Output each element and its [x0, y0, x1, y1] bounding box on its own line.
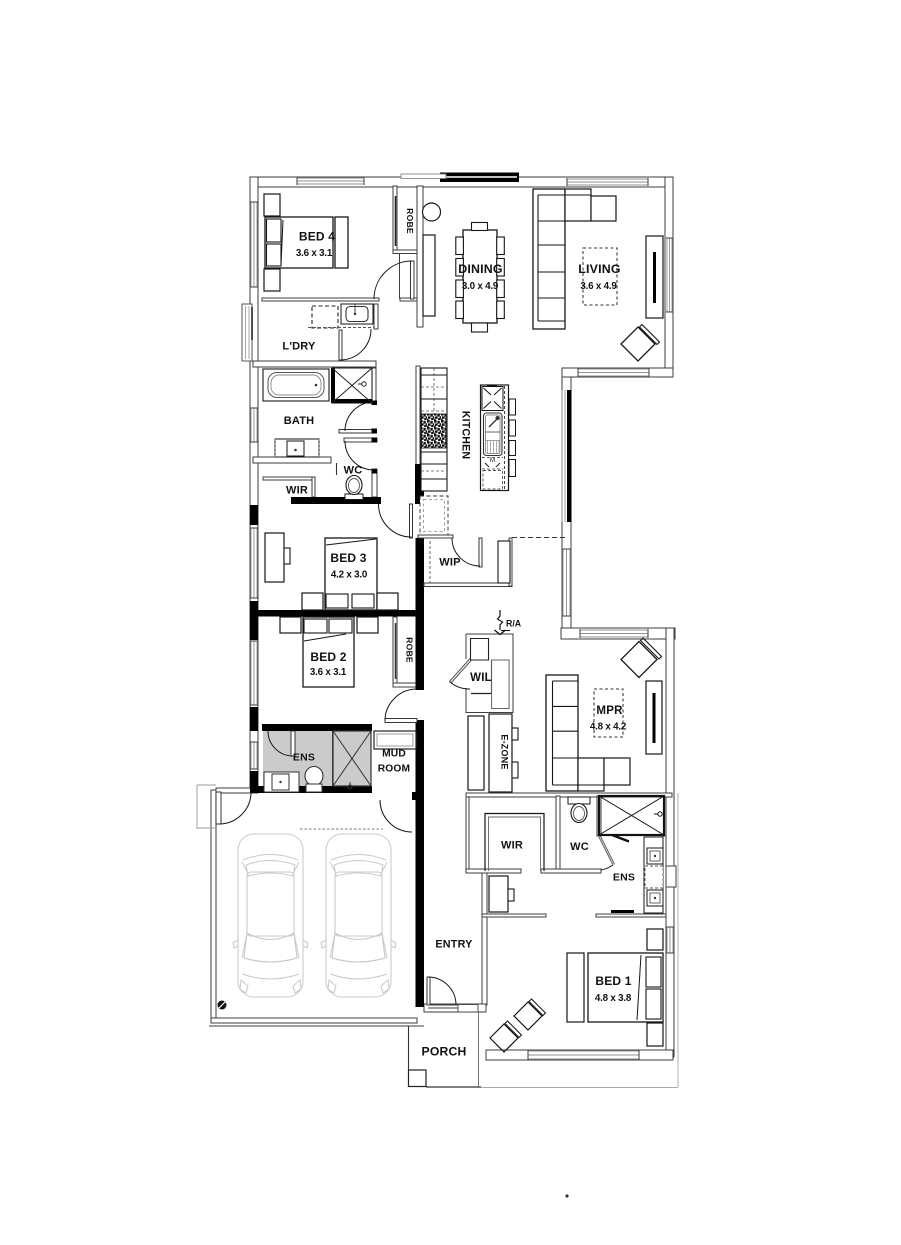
svg-text:DINING: DINING [458, 262, 503, 276]
svg-text:BED 3: BED 3 [330, 551, 366, 565]
svg-text:E-ZONE: E-ZONE [500, 734, 510, 769]
svg-text:3.0 x 4.9: 3.0 x 4.9 [462, 281, 499, 292]
svg-text:ENS: ENS [293, 752, 315, 764]
svg-text:LIVING: LIVING [578, 262, 621, 276]
svg-text:PORCH: PORCH [421, 1045, 466, 1059]
svg-text:MPR: MPR [596, 705, 623, 717]
svg-text:BED 2: BED 2 [310, 650, 346, 664]
svg-text:ROBE: ROBE [405, 637, 415, 663]
svg-text:3.6 x 3.1: 3.6 x 3.1 [296, 248, 333, 259]
svg-text:ENS: ENS [613, 872, 635, 884]
svg-text:BATH: BATH [284, 415, 315, 427]
svg-text:WIR: WIR [286, 485, 308, 497]
svg-text:M: M [490, 458, 495, 464]
svg-text:3.6 x 3.1: 3.6 x 3.1 [310, 667, 347, 678]
svg-text:4.2 x 3.0: 4.2 x 3.0 [331, 570, 368, 581]
svg-text:MUD: MUD [382, 749, 406, 760]
svg-text:BED 1: BED 1 [595, 974, 631, 988]
svg-text:WIP: WIP [439, 557, 460, 569]
svg-text:ROBE: ROBE [405, 208, 415, 234]
svg-text:WIL: WIL [470, 672, 492, 684]
svg-text:R/A: R/A [506, 619, 522, 629]
svg-text:BED 4: BED 4 [299, 230, 335, 244]
svg-text:WC: WC [344, 465, 363, 477]
svg-text:ROOM: ROOM [378, 764, 411, 775]
svg-text:3.6 x 4.9: 3.6 x 4.9 [580, 281, 617, 292]
svg-text:4.8 x 4.2: 4.8 x 4.2 [590, 722, 627, 733]
svg-text:L'DRY: L'DRY [282, 341, 316, 353]
svg-text:KITCHEN: KITCHEN [460, 411, 472, 459]
svg-text:4.8 x 3.8: 4.8 x 3.8 [595, 993, 632, 1004]
svg-text:ENTRY: ENTRY [435, 939, 473, 951]
svg-text:WC: WC [570, 841, 589, 853]
svg-text:WIR: WIR [501, 840, 523, 852]
